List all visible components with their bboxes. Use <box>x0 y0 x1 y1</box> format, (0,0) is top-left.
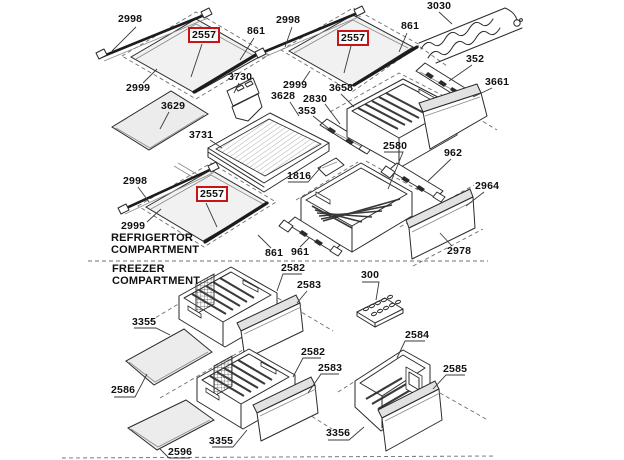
part-label-300: 300 <box>361 270 379 281</box>
part-label-2582: 2582 <box>281 263 305 274</box>
part-label-2583: 2583 <box>318 363 342 374</box>
part-label-961: 961 <box>291 247 309 258</box>
part-label-2830: 2830 <box>303 94 327 105</box>
part-label-1816: 1816 <box>287 171 311 182</box>
part-label-3658: 3658 <box>329 83 353 94</box>
part-label-2596: 2596 <box>168 447 192 458</box>
section-label-refrigertor: REFRIGERTOR COMPARTMENT <box>111 232 199 256</box>
label-layer: 2998255786130302998255786135236612999373… <box>0 0 624 460</box>
part-label-3628: 3628 <box>271 91 295 102</box>
part-label-2586: 2586 <box>111 385 135 396</box>
part-label-861: 861 <box>401 21 419 32</box>
part-label-2583: 2583 <box>297 280 321 291</box>
part-label-3356: 3356 <box>326 428 350 439</box>
part-label-352: 352 <box>466 54 484 65</box>
part-label-861: 861 <box>265 248 283 259</box>
section-label-freezer: FREEZER COMPARTMENT <box>112 263 200 287</box>
part-label-2999: 2999 <box>121 221 145 232</box>
part-label-3730: 3730 <box>228 72 252 83</box>
part-label-2998: 2998 <box>123 176 147 187</box>
part-label-2978: 2978 <box>447 246 471 257</box>
part-label-2582: 2582 <box>301 347 325 358</box>
part-label-962: 962 <box>444 148 462 159</box>
part-label-2585: 2585 <box>443 364 467 375</box>
part-label-2584: 2584 <box>405 330 429 341</box>
part-label-2557: 2557 <box>188 27 220 43</box>
part-label-2998: 2998 <box>276 15 300 26</box>
part-label-2557: 2557 <box>337 30 369 46</box>
part-label-3629: 3629 <box>161 101 185 112</box>
part-label-861: 861 <box>247 26 265 37</box>
part-label-3355: 3355 <box>209 436 233 447</box>
part-label-3030: 3030 <box>427 1 451 12</box>
parts-diagram-page: 2998255786130302998255786135236612999373… <box>0 0 624 460</box>
part-label-353: 353 <box>298 106 316 117</box>
part-label-2964: 2964 <box>475 181 499 192</box>
part-label-2998: 2998 <box>118 14 142 25</box>
part-label-3355: 3355 <box>132 317 156 328</box>
part-label-2557: 2557 <box>196 186 228 202</box>
part-label-3731: 3731 <box>189 130 213 141</box>
part-label-3661: 3661 <box>485 77 509 88</box>
part-label-2999: 2999 <box>126 83 150 94</box>
part-label-2580: 2580 <box>383 141 407 152</box>
